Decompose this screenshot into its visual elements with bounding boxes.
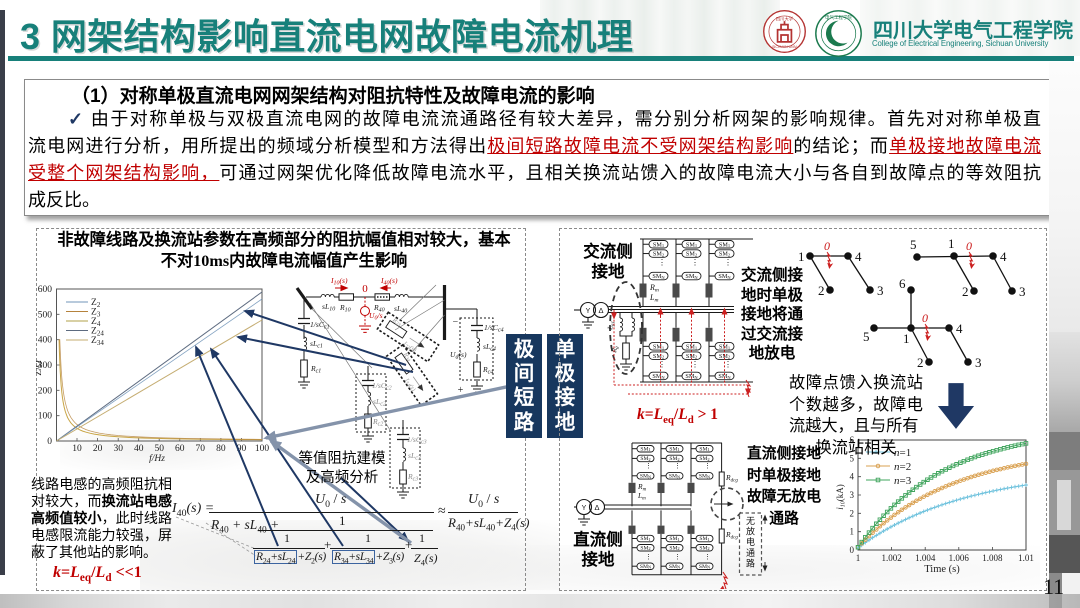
svg-text:四川大学: 四川大学 (776, 15, 794, 22)
svg-text:0: 0 (47, 437, 52, 447)
svg-text:1.006: 1.006 (949, 553, 970, 563)
svg-text:SMN: SMN (699, 564, 711, 570)
svg-text:SM2: SM2 (653, 353, 664, 360)
svg-text:⋮: ⋮ (674, 554, 681, 561)
svg-text:1: 1 (850, 527, 855, 537)
svg-text:SM1: SM1 (669, 536, 679, 542)
svg-text:Lm: Lm (637, 491, 646, 502)
svg-text:⋮: ⋮ (691, 258, 699, 267)
svg-text:Rdcg: Rdcg (725, 473, 738, 484)
svg-text:3: 3 (877, 283, 884, 298)
svg-text:2: 2 (962, 284, 969, 299)
svg-text:3: 3 (975, 355, 982, 370)
svg-text:n=3: n=3 (894, 475, 912, 487)
svg-text:sL40: sL40 (394, 304, 407, 315)
svg-text:1: 1 (903, 331, 910, 346)
svg-text:0: 0 (922, 311, 928, 325)
svg-text:SM1: SM1 (653, 344, 664, 351)
svg-text:1/sCc4: 1/sCc4 (484, 323, 504, 334)
svg-text:SM1: SM1 (699, 536, 709, 542)
svg-text:Y: Y (586, 308, 591, 315)
svg-text:600: 600 (38, 285, 53, 295)
svg-text:SMN: SMN (640, 474, 652, 480)
svg-text:SMN: SMN (685, 273, 698, 280)
svg-text:SMN: SMN (640, 564, 652, 570)
svg-text:100: 100 (255, 444, 270, 454)
svg-text:SM2: SM2 (669, 456, 679, 462)
svg-text:sLc2: sLc2 (373, 397, 386, 408)
svg-text:SMN: SMN (669, 564, 681, 570)
svg-text:电: 电 (746, 536, 755, 547)
svg-text:SM1: SM1 (699, 446, 709, 452)
svg-text:Time (s): Time (s) (924, 564, 960, 575)
svg-text:Rc4: Rc4 (482, 365, 493, 376)
svg-text:Ud(s): Ud(s) (450, 350, 467, 361)
svg-text:6: 6 (899, 276, 906, 291)
svg-text:3: 3 (1019, 284, 1026, 299)
svg-text:+: + (457, 385, 464, 396)
svg-text:SM2: SM2 (719, 251, 730, 258)
svg-text:Δ: Δ (598, 306, 603, 315)
svg-text:Lm: Lm (649, 293, 658, 304)
svg-text:SM1: SM1 (653, 241, 664, 248)
svg-text:200: 200 (38, 386, 53, 396)
svg-text:1: 1 (798, 249, 805, 264)
svg-text:SM1: SM1 (686, 241, 697, 248)
svg-text:sLc1: sLc1 (310, 339, 323, 350)
svg-text:⋮: ⋮ (674, 463, 681, 470)
svg-text:1/sCc3: 1/sCc3 (407, 435, 427, 446)
svg-text:⋮: ⋮ (704, 554, 711, 561)
svg-text:40: 40 (134, 444, 144, 454)
svg-text:SMN: SMN (669, 474, 681, 480)
svg-text:Rdcg: Rdcg (725, 530, 738, 541)
svg-text:SM1: SM1 (719, 241, 730, 248)
svg-text:SMN: SMN (718, 273, 731, 280)
svg-text:30: 30 (113, 444, 123, 454)
svg-text:SMN: SMN (652, 273, 665, 280)
svg-text:Y: Y (582, 505, 587, 512)
svg-text:1.008: 1.008 (982, 553, 1003, 563)
svg-text:SM1: SM1 (669, 446, 679, 452)
svg-text:1.002: 1.002 (881, 553, 901, 563)
svg-text:1: 1 (948, 236, 955, 251)
svg-text:R10: R10 (339, 303, 351, 314)
svg-text:⋮: ⋮ (704, 463, 711, 470)
svg-text:路: 路 (746, 557, 755, 568)
svg-text:1: 1 (856, 553, 861, 563)
svg-text:SM2: SM2 (653, 251, 664, 258)
svg-text:电气工程学院: 电气工程学院 (825, 14, 853, 21)
svg-text:SM2: SM2 (669, 545, 679, 551)
svg-text:Z/Ω: Z/Ω (36, 360, 44, 376)
svg-text:0: 0 (850, 545, 855, 555)
svg-text:I40(s): I40(s) (380, 276, 398, 287)
svg-text:SM1: SM1 (640, 536, 650, 542)
svg-text:SM2: SM2 (686, 251, 697, 258)
svg-text:SM2: SM2 (640, 545, 650, 551)
svg-text:⋮: ⋮ (724, 258, 732, 267)
svg-text:n=2: n=2 (894, 461, 911, 473)
svg-text:4: 4 (850, 472, 855, 482)
svg-text:2: 2 (917, 355, 924, 370)
svg-text:4: 4 (1000, 249, 1007, 264)
svg-text:Rc1: Rc1 (310, 364, 321, 375)
svg-text:1/sCc2: 1/sCc2 (372, 381, 392, 392)
svg-text:−: − (452, 317, 459, 328)
svg-text:Rm: Rm (649, 283, 659, 294)
svg-text:Rc2: Rc2 (372, 417, 383, 428)
svg-text:⋮: ⋮ (691, 360, 699, 369)
svg-text:20: 20 (93, 444, 103, 454)
svg-text:50: 50 (154, 444, 164, 454)
svg-text:0: 0 (824, 239, 830, 253)
svg-text:3: 3 (850, 490, 855, 500)
svg-text:80: 80 (216, 444, 226, 454)
svg-text:5: 5 (863, 329, 870, 344)
svg-text:SICHUAN UNIV: SICHUAN UNIV (772, 45, 797, 49)
svg-text:⋮: ⋮ (658, 360, 666, 369)
svg-text:500: 500 (38, 310, 53, 320)
svg-text:10: 10 (72, 444, 82, 454)
svg-text:SM2: SM2 (699, 456, 709, 462)
svg-text:70: 70 (196, 444, 206, 454)
svg-text:i10(kA): i10(kA) (835, 484, 847, 510)
svg-text:通: 通 (746, 548, 755, 558)
svg-text:SMN: SMN (699, 474, 711, 480)
svg-text:⋮: ⋮ (645, 463, 652, 470)
svg-text:0: 0 (966, 239, 972, 253)
svg-text:1/sCc1: 1/sCc1 (310, 320, 330, 331)
svg-text:Lg1: Lg1 (606, 320, 617, 331)
svg-text:U0/s: U0/s (369, 311, 383, 322)
svg-text:Δ: Δ (594, 503, 599, 512)
svg-text:SMN: SMN (652, 373, 665, 380)
svg-text:1.004: 1.004 (915, 553, 936, 563)
svg-text:I10(s): I10(s) (330, 276, 348, 287)
svg-text:SM1: SM1 (640, 446, 650, 452)
svg-text:⋮: ⋮ (724, 360, 732, 369)
svg-text:60: 60 (175, 444, 185, 454)
svg-text:⋮: ⋮ (658, 258, 666, 267)
svg-text:SM2: SM2 (640, 456, 650, 462)
svg-text:0: 0 (362, 283, 368, 295)
svg-text:Z34: Z34 (91, 336, 104, 347)
svg-text:100: 100 (38, 412, 53, 422)
svg-text:⋮: ⋮ (645, 554, 652, 561)
svg-text:2: 2 (850, 508, 855, 518)
svg-text:SM2: SM2 (699, 545, 709, 551)
svg-text:5: 5 (910, 237, 917, 252)
svg-text:sL10: sL10 (322, 302, 335, 313)
svg-text:1.01: 1.01 (1018, 553, 1034, 563)
svg-text:4: 4 (855, 249, 862, 264)
svg-text:400: 400 (38, 336, 53, 346)
svg-text:4: 4 (956, 321, 963, 336)
svg-text:2: 2 (818, 283, 825, 298)
svg-text:sLc4: sLc4 (483, 342, 496, 353)
